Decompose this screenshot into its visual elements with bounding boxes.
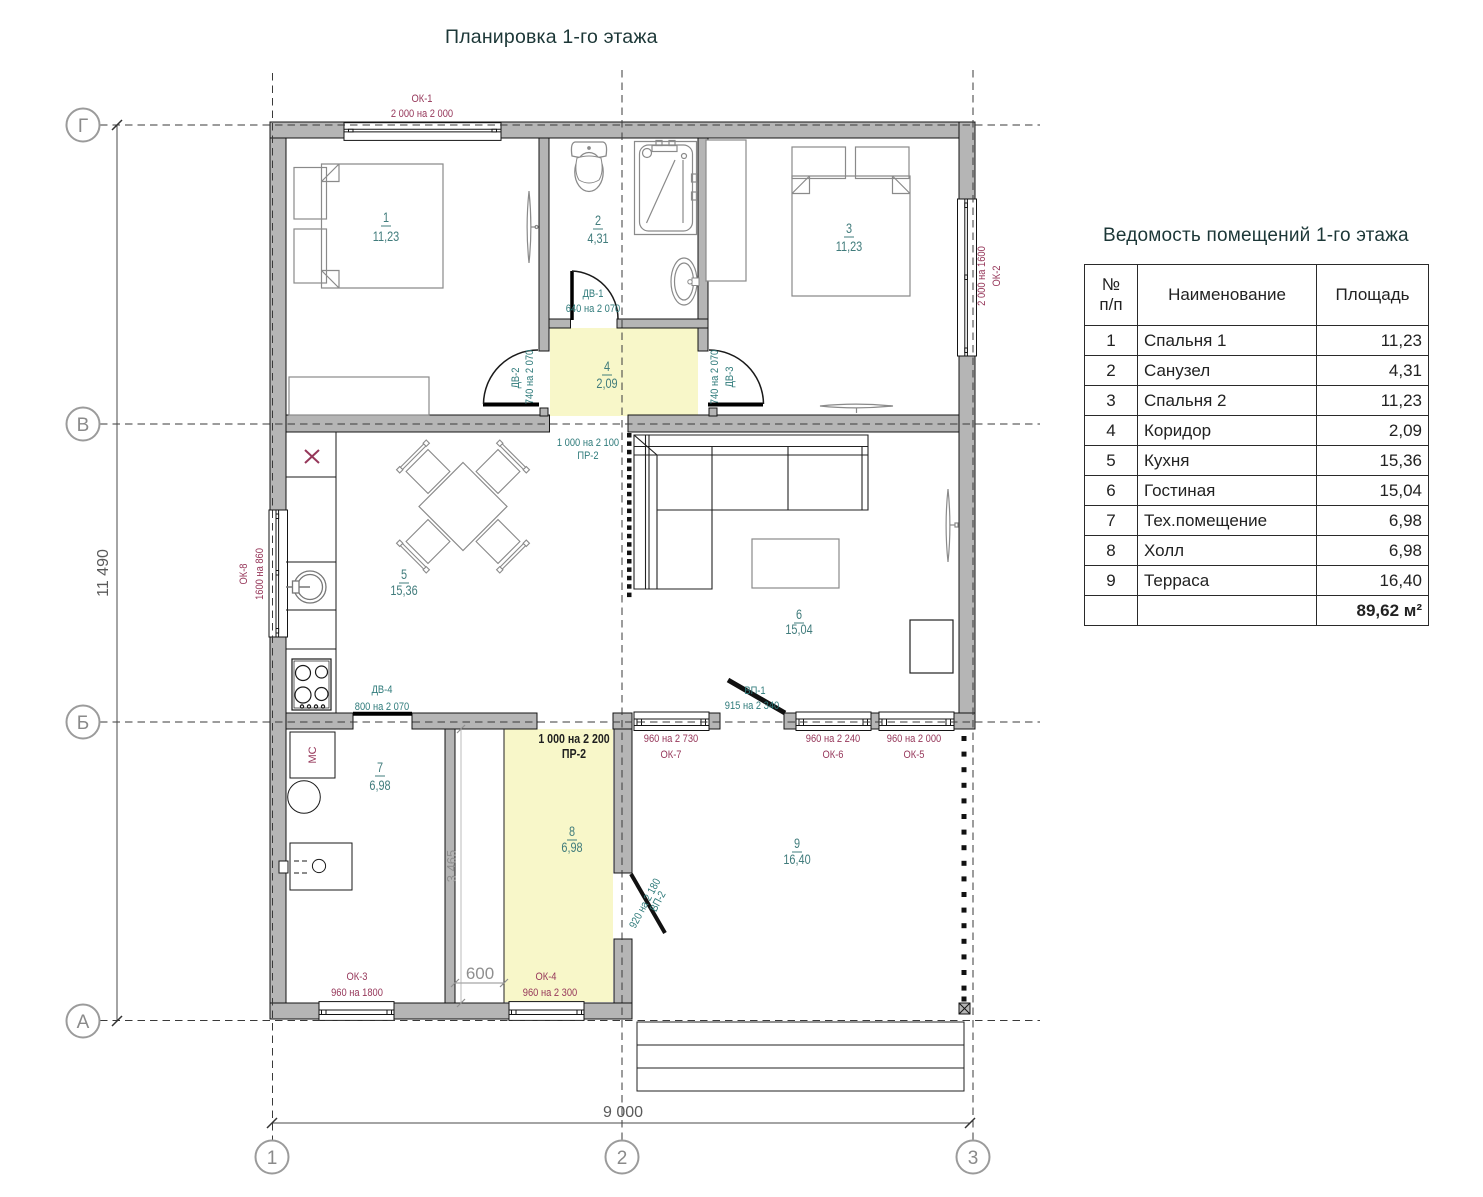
svg-text:ПР-2: ПР-2 (562, 747, 586, 761)
svg-text:1600 на 860: 1600 на 860 (254, 548, 266, 600)
svg-text:ОК-3: ОК-3 (347, 971, 368, 983)
svg-text:МС: МС (307, 746, 319, 763)
svg-text:740 на 2 070: 740 на 2 070 (709, 349, 721, 404)
svg-text:960 на 2 730: 960 на 2 730 (644, 733, 699, 745)
svg-text:640 на 2 070: 640 на 2 070 (566, 303, 621, 315)
svg-text:2 000 на 1600: 2 000 на 1600 (976, 246, 988, 306)
svg-text:1: 1 (267, 1148, 278, 1169)
svg-text:ОК-7: ОК-7 (661, 749, 682, 761)
svg-text:11 490: 11 490 (95, 549, 112, 597)
svg-text:5: 5 (401, 567, 407, 583)
svg-text:ОК-2: ОК-2 (991, 265, 1003, 286)
svg-text:15,36: 15,36 (390, 583, 417, 599)
svg-text:4,31: 4,31 (587, 231, 608, 247)
svg-text:ПР-2: ПР-2 (577, 450, 599, 462)
svg-text:3 465: 3 465 (444, 850, 459, 883)
svg-text:ДВ-4: ДВ-4 (372, 684, 393, 696)
svg-text:2,09: 2,09 (596, 376, 617, 392)
svg-text:960 на 2 240: 960 на 2 240 (806, 733, 861, 745)
svg-text:Г: Г (78, 116, 88, 137)
svg-text:1 000 на 2 200: 1 000 на 2 200 (538, 732, 609, 746)
svg-text:8: 8 (569, 824, 575, 840)
svg-text:2: 2 (617, 1148, 628, 1169)
svg-text:В: В (77, 415, 90, 436)
svg-text:ОК-5: ОК-5 (904, 749, 925, 761)
svg-text:11,23: 11,23 (373, 229, 400, 245)
svg-text:6: 6 (796, 607, 802, 623)
svg-text:4: 4 (604, 359, 610, 375)
svg-text:960 на 1800: 960 на 1800 (331, 987, 383, 999)
svg-text:ДВ-1: ДВ-1 (583, 288, 604, 300)
svg-text:960 на 2 000: 960 на 2 000 (887, 733, 942, 745)
svg-text:А: А (77, 1012, 90, 1033)
svg-text:6,98: 6,98 (561, 840, 582, 856)
svg-text:ОК-8: ОК-8 (238, 563, 250, 584)
svg-text:960 на 2 300: 960 на 2 300 (523, 987, 578, 999)
svg-text:9: 9 (794, 836, 800, 852)
svg-text:9 000: 9 000 (603, 1104, 643, 1121)
svg-text:6,98: 6,98 (369, 778, 390, 794)
svg-text:740 на 2 070: 740 на 2 070 (524, 349, 536, 404)
svg-text:2 000 на 2 000: 2 000 на 2 000 (391, 108, 454, 120)
svg-text:ОК-1: ОК-1 (412, 93, 433, 105)
svg-text:Б: Б (77, 713, 89, 734)
svg-text:ДВ-2: ДВ-2 (510, 367, 522, 388)
svg-text:915 на 2 340: 915 на 2 340 (725, 700, 780, 712)
svg-text:2: 2 (595, 213, 601, 229)
svg-text:800 на 2 070: 800 на 2 070 (355, 701, 410, 713)
svg-text:ОК-4: ОК-4 (536, 971, 557, 983)
svg-text:3: 3 (968, 1148, 979, 1169)
svg-text:ВП-1: ВП-1 (744, 685, 766, 697)
svg-text:16,40: 16,40 (783, 852, 810, 868)
svg-text:1 000 на 2 100: 1 000 на 2 100 (557, 437, 620, 449)
svg-text:ОК-6: ОК-6 (823, 749, 844, 761)
svg-text:1: 1 (383, 210, 389, 226)
svg-text:15,04: 15,04 (785, 622, 812, 638)
svg-text:11,23: 11,23 (836, 239, 863, 255)
svg-text:ДВ-3: ДВ-3 (724, 366, 736, 387)
svg-text:3: 3 (846, 221, 852, 237)
svg-text:7: 7 (377, 760, 383, 776)
svg-text:600: 600 (466, 964, 494, 983)
